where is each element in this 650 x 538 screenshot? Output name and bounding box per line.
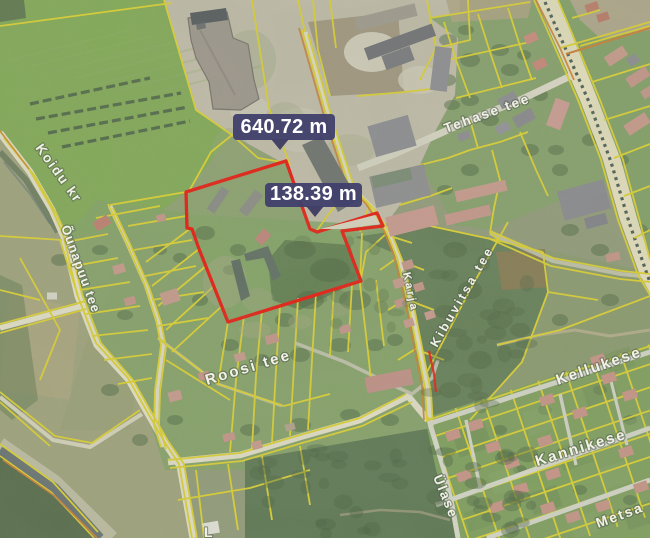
svg-text:640.72 m: 640.72 m: [241, 116, 328, 138]
svg-text:138.39 m: 138.39 m: [270, 183, 357, 205]
svg-text:L: L: [204, 524, 213, 538]
